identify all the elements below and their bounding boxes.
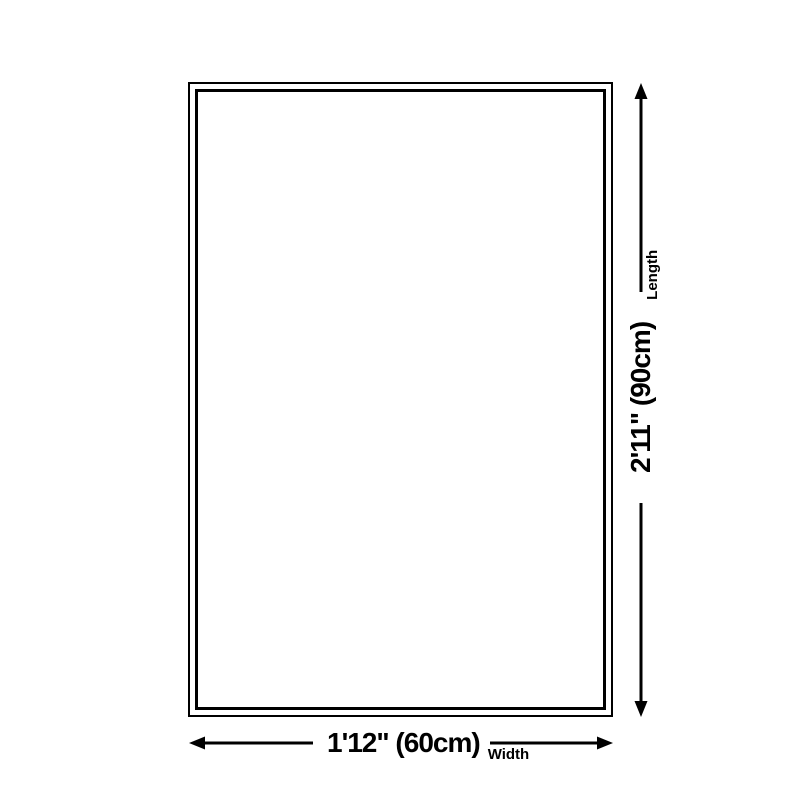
length-label: Length: [645, 250, 660, 300]
width-value: 1'12" (60cm): [327, 729, 480, 757]
arrow-left-icon: [189, 737, 205, 750]
width-dimension-label: 1'12" (60cm) Width: [327, 729, 529, 757]
rug-inner-border: [195, 89, 606, 710]
length-dimension-label: 2'11" (90cm) Length: [627, 250, 655, 473]
arrow-up-icon: [635, 83, 648, 99]
width-label: Width: [488, 747, 530, 762]
size-diagram: 1'12" (60cm) Width 2'11" (90cm) Length: [0, 0, 800, 800]
rug-outline: [188, 82, 613, 717]
arrow-right-icon: [597, 737, 613, 750]
arrow-down-icon: [635, 701, 648, 717]
length-value: 2'11" (90cm): [627, 322, 655, 473]
